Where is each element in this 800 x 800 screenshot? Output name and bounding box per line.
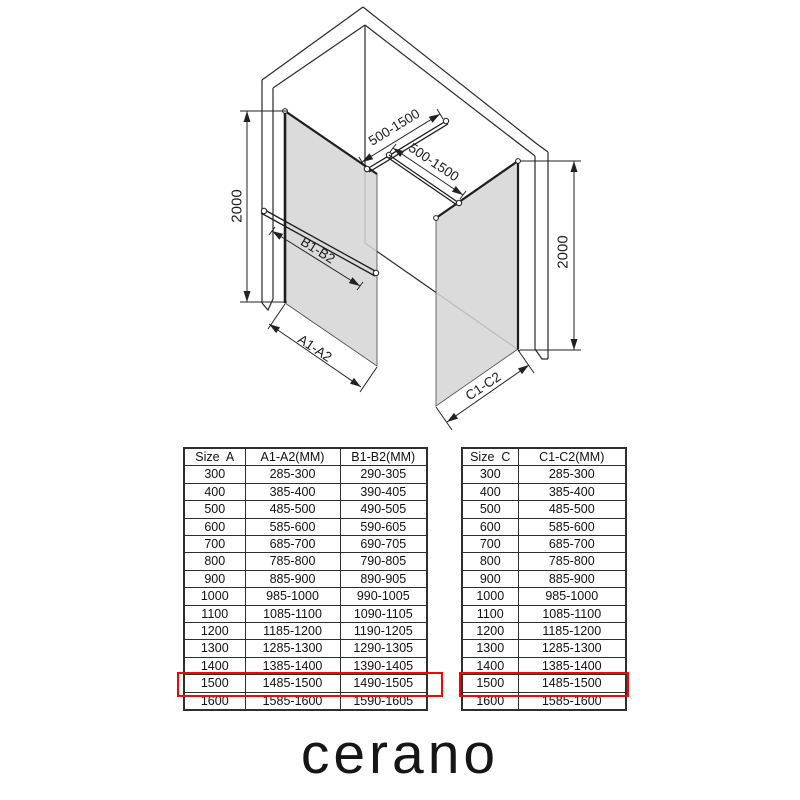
table-row: 900885-900890-905: [184, 570, 427, 587]
size-cell: 1100: [184, 605, 245, 622]
size-cell: 800: [184, 553, 245, 570]
column-header: Size C: [462, 448, 518, 466]
highlight-box-size-1500-left: [177, 672, 443, 697]
glass-panel-a: [285, 111, 377, 366]
range-cell: 885-900: [245, 570, 340, 587]
size-cell: 400: [462, 483, 518, 500]
table-row: 800785-800790-805: [184, 553, 427, 570]
range-cell: 285-300: [518, 466, 626, 483]
range-cell: 890-905: [340, 570, 427, 587]
table-row: 700685-700: [462, 536, 626, 553]
table-row: 12001185-1200: [462, 623, 626, 640]
dimension-labels: 500-1500 500-1500 B1-B2 A1-A2 C1-C2 2000…: [228, 106, 571, 403]
range-cell: 385-400: [518, 483, 626, 500]
table-row: 11001085-1100: [462, 605, 626, 622]
size-cell: 700: [184, 536, 245, 553]
range-cell: 985-1000: [518, 588, 626, 605]
table-row: 11001085-11001090-1105: [184, 605, 427, 622]
range-cell: 1085-1100: [518, 605, 626, 622]
column-header: A1-A2(MM): [245, 448, 340, 466]
shower-diagram: 500-1500 500-1500 B1-B2 A1-A2 C1-C2 2000…: [225, 0, 600, 435]
range-cell: 1185-1200: [245, 623, 340, 640]
range-cell: 785-800: [245, 553, 340, 570]
column-header: C1-C2(MM): [518, 448, 626, 466]
table-row: 13001285-1300: [462, 640, 626, 657]
shower-diagram-svg: 500-1500 500-1500 B1-B2 A1-A2 C1-C2 2000…: [225, 0, 600, 435]
range-cell: 285-300: [245, 466, 340, 483]
size-cell: 400: [184, 483, 245, 500]
size-cell: 1100: [462, 605, 518, 622]
table-row: 700685-700690-705: [184, 536, 427, 553]
range-cell: 790-805: [340, 553, 427, 570]
range-cell: 485-500: [518, 501, 626, 518]
range-cell: 385-400: [245, 483, 340, 500]
table-row: 400385-400390-405: [184, 483, 427, 500]
range-cell: 390-405: [340, 483, 427, 500]
size-cell: 900: [462, 570, 518, 587]
size-cell: 300: [184, 466, 245, 483]
size-cell: 700: [462, 536, 518, 553]
size-cell: 800: [462, 553, 518, 570]
size-cell: 900: [184, 570, 245, 587]
range-cell: 1090-1105: [340, 605, 427, 622]
range-cell: 490-505: [340, 501, 427, 518]
range-cell: 690-705: [340, 536, 427, 553]
table-header-row: Size AA1-A2(MM)B1-B2(MM): [184, 448, 427, 466]
table-row: 1000985-1000990-1005: [184, 588, 427, 605]
size-cell: 1000: [184, 588, 245, 605]
table-row: 1000985-1000: [462, 588, 626, 605]
table-row: 300285-300: [462, 466, 626, 483]
range-cell: 1285-1300: [518, 640, 626, 657]
range-cell: 1290-1305: [340, 640, 427, 657]
table-row: 13001285-13001290-1305: [184, 640, 427, 657]
table-row: 500485-500490-505: [184, 501, 427, 518]
range-cell: 685-700: [518, 536, 626, 553]
table-row: 800785-800: [462, 553, 626, 570]
table-row: 600585-600: [462, 518, 626, 535]
range-cell: 1085-1100: [245, 605, 340, 622]
size-cell: 1300: [184, 640, 245, 657]
size-cell: 1200: [462, 623, 518, 640]
range-cell: 1285-1300: [245, 640, 340, 657]
brand-logo: cerano: [0, 724, 800, 786]
table-row: 500485-500: [462, 501, 626, 518]
range-cell: 685-700: [245, 536, 340, 553]
dim-label-2000-left: 2000: [228, 189, 245, 222]
glass-panel-c: [436, 161, 518, 406]
size-cell: 1300: [462, 640, 518, 657]
range-cell: 485-500: [245, 501, 340, 518]
dim-label-2000-right: 2000: [554, 235, 571, 268]
column-header: Size A: [184, 448, 245, 466]
size-cell: 500: [462, 501, 518, 518]
dim-label-a1-a2: A1-A2: [295, 332, 335, 365]
highlight-box-size-1500-right: [459, 672, 629, 697]
column-header: B1-B2(MM): [340, 448, 427, 466]
size-cell: 600: [184, 518, 245, 535]
range-cell: 290-305: [340, 466, 427, 483]
range-cell: 585-600: [518, 518, 626, 535]
range-cell: 990-1005: [340, 588, 427, 605]
table-header-row: Size CC1-C2(MM): [462, 448, 626, 466]
table-row: 600585-600590-605: [184, 518, 427, 535]
range-cell: 1190-1205: [340, 623, 427, 640]
table-row: 900885-900: [462, 570, 626, 587]
range-cell: 590-605: [340, 518, 427, 535]
table-row: 12001185-12001190-1205: [184, 623, 427, 640]
size-cell: 300: [462, 466, 518, 483]
range-cell: 785-800: [518, 553, 626, 570]
range-cell: 1185-1200: [518, 623, 626, 640]
table-row: 300285-300290-305: [184, 466, 427, 483]
range-cell: 885-900: [518, 570, 626, 587]
size-cell: 500: [184, 501, 245, 518]
size-cell: 1000: [462, 588, 518, 605]
range-cell: 985-1000: [245, 588, 340, 605]
size-cell: 600: [462, 518, 518, 535]
size-cell: 1200: [184, 623, 245, 640]
table-row: 400385-400: [462, 483, 626, 500]
range-cell: 585-600: [245, 518, 340, 535]
